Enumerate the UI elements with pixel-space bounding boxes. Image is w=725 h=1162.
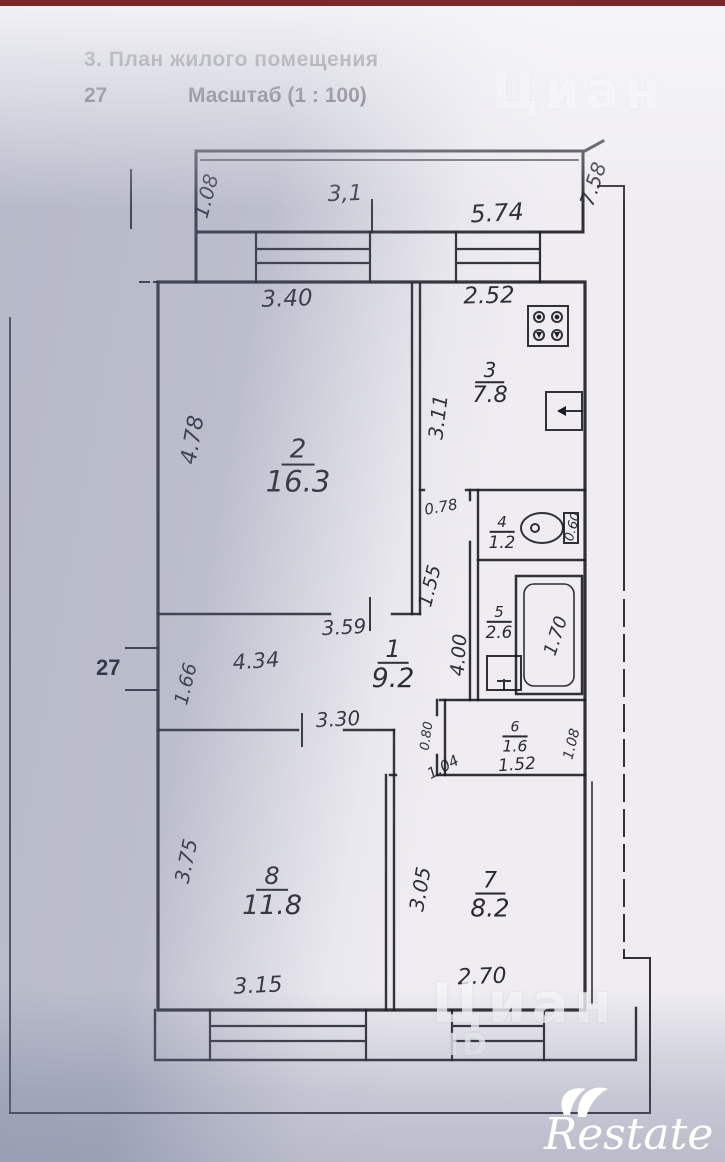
room-number: 2 [282,437,315,466]
room-area: 1.6 [503,738,528,754]
room-area: 1.2 [489,534,516,552]
dim-2-70: 2.70 [457,964,507,991]
kitchen-sink-icon [546,392,582,430]
room-area: 11.8 [242,892,302,920]
room-3-label: 3 7.8 [472,358,508,408]
balcony-bottom-outline [155,1008,636,1060]
dim-4-00: 4.00 [447,633,472,677]
room-area: 7.8 [472,384,508,408]
logo-text: Restate [543,1109,713,1160]
room-number: 3 [476,360,505,383]
margin-label-27: 27 [96,655,120,681]
room-1-label: 1 9.2 [372,635,415,693]
room-area: 2.6 [486,624,513,642]
dim-2-52: 2.52 [463,283,515,310]
room-number: 4 [489,515,515,533]
room-8-label: 8 11.8 [242,862,302,920]
dim-3-30: 3.30 [315,706,361,732]
room-area: 9.2 [372,665,415,693]
dim-3-59: 3.59 [321,614,367,640]
room-number: 8 [256,864,287,891]
room-4-label: 4 1.2 [489,513,516,551]
restate-logo: Restate [538,1083,725,1162]
scan-edge-strip [0,0,725,6]
scanned-floor-plan-page: 3. План жилого помещения 27 Масштаб (1 :… [0,0,725,1162]
room-5-label: 5 2.6 [486,603,513,641]
room-number: 7 [475,870,505,895]
restate-logo-graphic: Restate [538,1083,725,1161]
dim-4-34: 4.34 [232,647,280,674]
dim-5-74: 5.74 [470,198,525,229]
room-area: 8.2 [470,896,509,922]
dim-1-52: 1.52 [497,754,536,777]
room-2-label: 2 16.3 [266,435,331,498]
room-7-label: 7 8.2 [470,869,509,922]
dim-3-40: 3.40 [261,285,313,313]
room-number: 6 [503,720,528,737]
room-area: 16.3 [266,467,331,498]
stove-icon [528,306,568,346]
floor-plan-drawing [0,0,725,1162]
dim-3-15: 3.15 [233,972,283,1000]
balcony-area-label: 3,1 [327,181,363,207]
room-number: 1 [377,637,408,664]
room-6-label: 6 1.6 [503,719,528,754]
room-number: 5 [486,605,512,623]
